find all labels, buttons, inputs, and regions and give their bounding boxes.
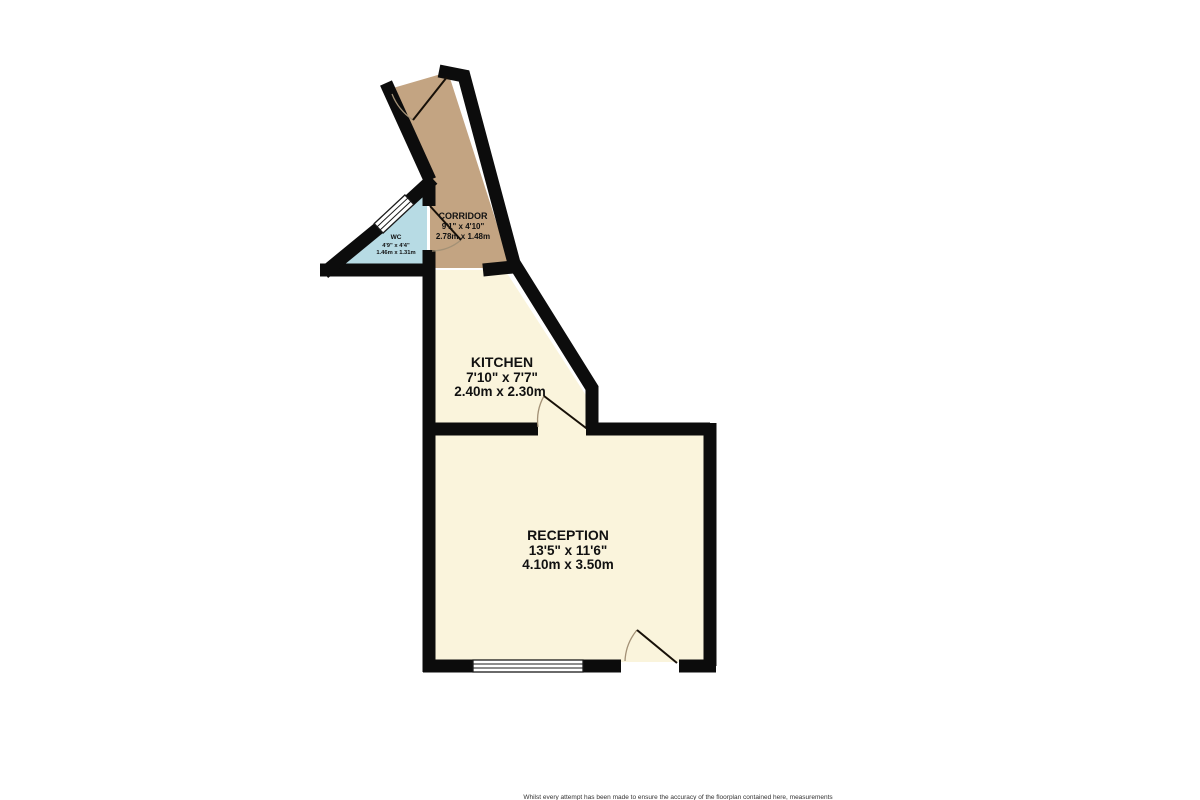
- reception-metric: 4.10m x 3.50m: [522, 557, 614, 572]
- disclaimer-text: Whilst every attempt has been made to en…: [523, 794, 833, 800]
- floorplan-svg: CORRIDOR 9'1" x 4'10" 2.78m x 1.48m WC 4…: [0, 0, 1200, 800]
- corridor-name: CORRIDOR: [439, 211, 488, 221]
- window-reception: [473, 660, 583, 672]
- corridor-imperial: 9'1" x 4'10": [442, 222, 485, 231]
- reception-imperial: 13'5" x 11'6": [529, 543, 608, 558]
- wc-imperial: 4'9" x 4'4": [382, 243, 410, 249]
- kitchen-metric: 2.40m x 2.30m: [454, 384, 546, 399]
- wc-metric: 1.46m x 1.31m: [376, 250, 415, 256]
- room-kitchen-reception: [430, 270, 704, 662]
- corridor-metric: 2.78m x 1.48m: [436, 232, 490, 241]
- floorplan-page: CORRIDOR 9'1" x 4'10" 2.78m x 1.48m WC 4…: [0, 0, 1200, 800]
- reception-name: RECEPTION: [527, 527, 609, 543]
- kitchen-name: KITCHEN: [471, 354, 533, 370]
- wc-name: WC: [391, 234, 402, 241]
- wall-corridor-kitchen-stub: [483, 267, 513, 270]
- kitchen-imperial: 7'10" x 7'7": [466, 370, 538, 385]
